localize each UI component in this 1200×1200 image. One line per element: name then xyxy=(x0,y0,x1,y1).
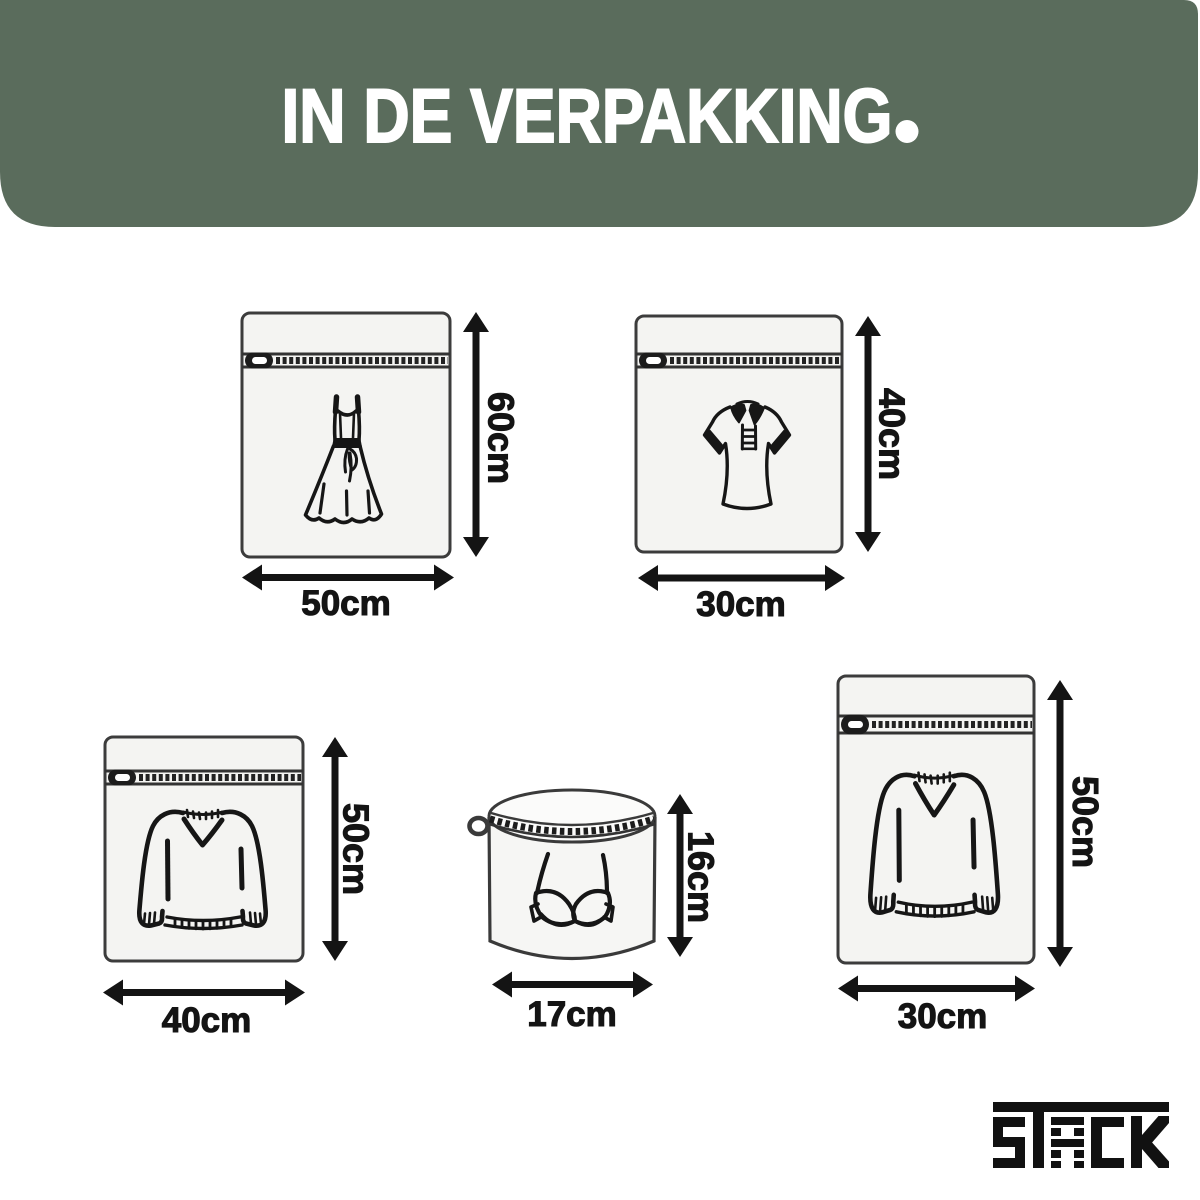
svg-text:40cm: 40cm xyxy=(872,388,913,480)
svg-text:50cm: 50cm xyxy=(301,584,391,623)
svg-text:60cm: 60cm xyxy=(481,392,522,484)
svg-text:50cm: 50cm xyxy=(336,803,377,895)
svg-text:30cm: 30cm xyxy=(696,585,786,624)
svg-text:50cm: 50cm xyxy=(1065,776,1106,868)
svg-text:16cm: 16cm xyxy=(681,831,722,923)
svg-text:17cm: 17cm xyxy=(527,995,617,1034)
svg-text:40cm: 40cm xyxy=(162,1001,252,1040)
svg-text:IN DE VERPAKKING: IN DE VERPAKKING xyxy=(282,74,893,159)
svg-text:30cm: 30cm xyxy=(898,997,988,1036)
